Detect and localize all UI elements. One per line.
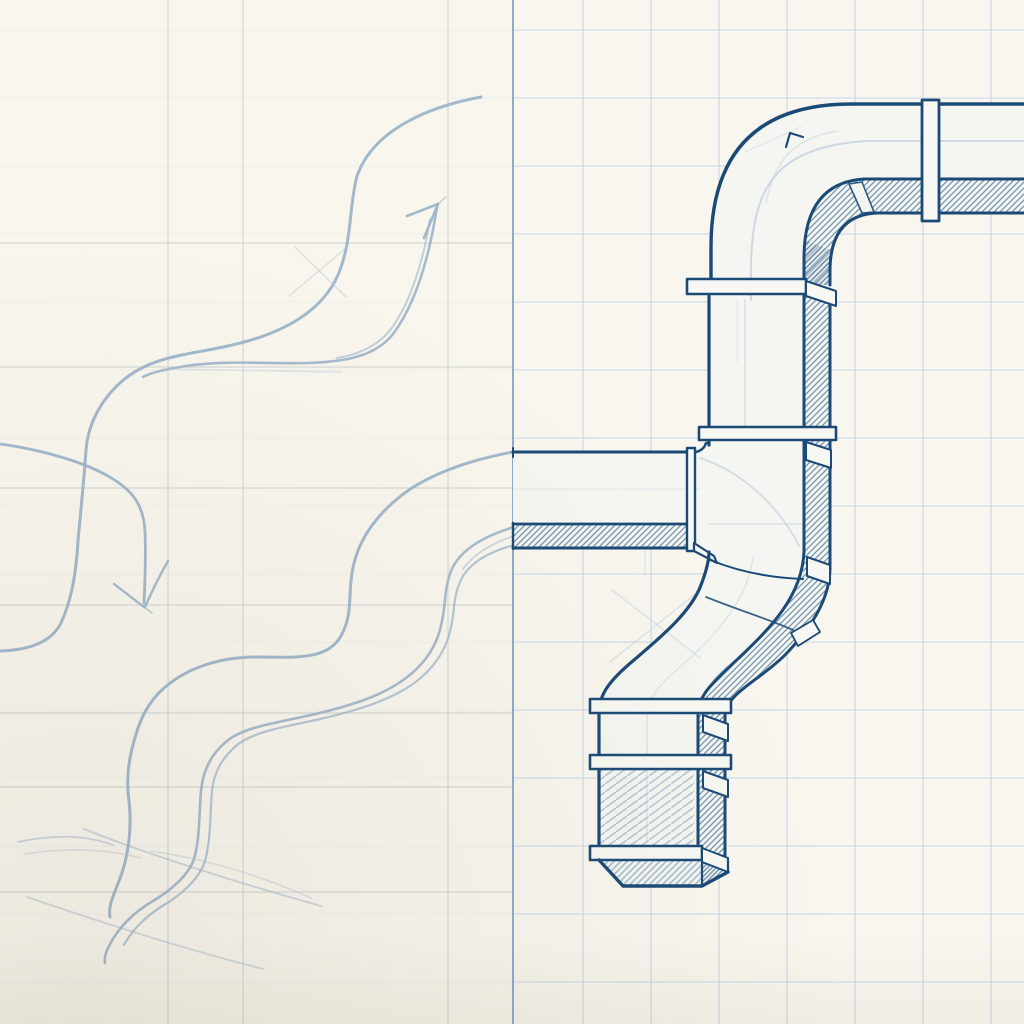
vignette [0,0,1024,1024]
bottom-shadow [0,934,1024,1024]
duct-sketch-canvas [0,0,1024,1024]
sketch-page [0,0,1024,1024]
